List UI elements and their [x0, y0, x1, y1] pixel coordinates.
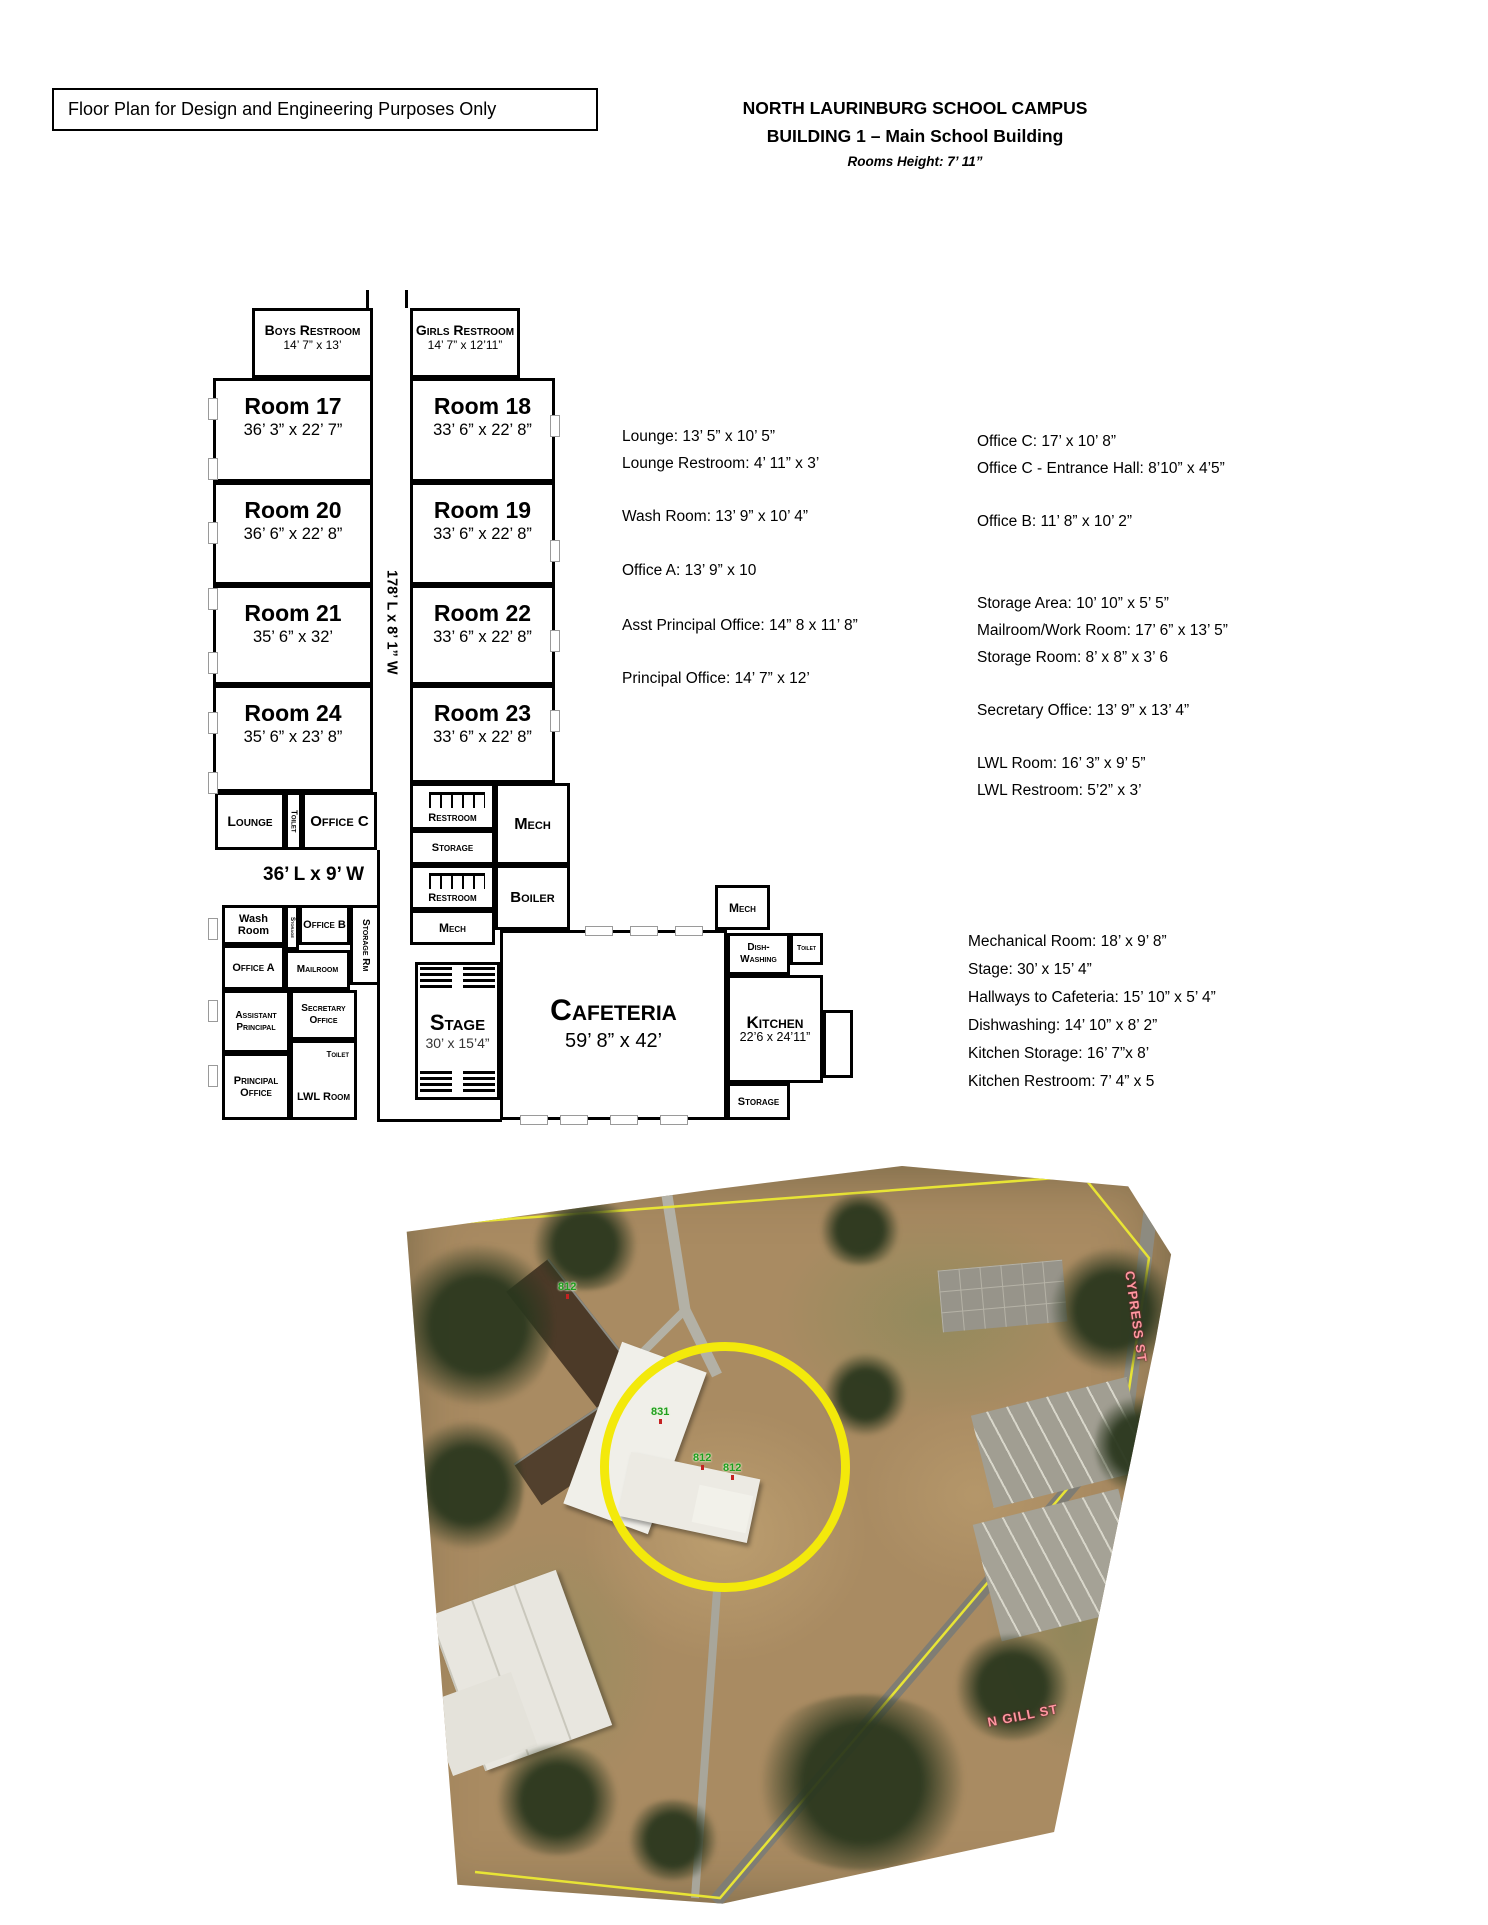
- note-line: Mechanical Room: 18’ x 9’ 8”: [968, 933, 1167, 951]
- window-mark: [550, 630, 560, 652]
- window-mark: [208, 652, 218, 674]
- room-lwl: Toilet LWL Room: [290, 1040, 357, 1120]
- room-label: Restroom: [428, 812, 476, 824]
- room-boys-restroom: Boys Restroom 14’ 7” x 13’: [252, 308, 373, 378]
- room-label: Boiler: [510, 890, 554, 905]
- room-label: Storage: [286, 917, 298, 938]
- note-line: Office C - Entrance Hall: 8’10” x 4’5”: [977, 460, 1225, 478]
- room-label: Office C: [310, 814, 368, 829]
- room-19: Room 19 33’ 6” x 22’ 8”: [410, 482, 555, 585]
- room-girls-restroom: Girls Restroom 14’ 7” x 12’11”: [410, 308, 520, 378]
- room-label: Room 23: [434, 700, 531, 726]
- note-line: Lounge Restroom: 4’ 11” x 3’: [622, 455, 819, 473]
- room-dims: 36’ 3” x 22’ 7”: [244, 419, 343, 441]
- room-dims: 33’ 6” x 22’ 8”: [433, 419, 532, 441]
- parcel-marker-label: 812: [558, 1281, 576, 1293]
- room-label: Room 24: [244, 700, 341, 726]
- document-page: Floor Plan for Design and Engineering Pu…: [0, 0, 1488, 1925]
- room-18: Room 18 33’ 6” x 22’ 8”: [410, 378, 555, 482]
- room-principal-office: Principal Office: [222, 1053, 290, 1120]
- tree-cluster: [745, 1695, 980, 1870]
- driveway-path: [640, 1310, 685, 1355]
- room-label: Storage Rm: [359, 919, 371, 971]
- note-line: LWL Room: 16’ 3” x 9’ 5”: [977, 755, 1146, 773]
- title-block: NORTH LAURINBURG SCHOOL CAMPUS BUILDING …: [690, 94, 1140, 174]
- window-mark: [560, 1115, 588, 1125]
- tree-cluster: [815, 1195, 905, 1265]
- window-mark: [550, 415, 560, 437]
- room-label: Room 19: [434, 497, 531, 523]
- room-dims: 59’ 8” x 42’: [565, 1027, 662, 1055]
- room-restroom-top: Restroom: [410, 783, 495, 830]
- room-office-a: Office A: [222, 945, 285, 990]
- room-mailroom: Mailroom: [285, 950, 350, 990]
- room-storage-mid: Storage: [410, 830, 495, 865]
- window-mark: [208, 522, 218, 544]
- room-toilet-label: Toilet: [326, 1049, 349, 1061]
- lounge-hallway: 36’ L x 9’ W: [263, 864, 364, 886]
- room-assistant-principal: Assistant Principal: [222, 990, 290, 1053]
- room-17: Room 17 36’ 3” x 22’ 7”: [213, 378, 373, 482]
- room-dims: 33’ 6” x 22’ 8”: [433, 726, 532, 748]
- room-label: Storage: [432, 842, 473, 854]
- room-24: Room 24 35’ 6” x 23’ 8”: [213, 685, 373, 792]
- window-mark: [520, 1115, 548, 1125]
- note-line: Storage Room: 8’ x 8” x 3’ 6: [977, 649, 1168, 667]
- window-mark: [610, 1115, 638, 1125]
- room-label: Boys Restroom: [265, 323, 361, 338]
- window-mark: [208, 398, 218, 420]
- campus-title: NORTH LAURINBURG SCHOOL CAMPUS: [690, 94, 1140, 122]
- note-line: Wash Room: 13’ 9” x 10’ 4”: [622, 508, 808, 526]
- room-label: Kitchen: [747, 1015, 804, 1030]
- room-label: Toilet: [288, 810, 300, 833]
- room-secretary-office: Secretary Office: [290, 990, 357, 1040]
- main-hallway-dims: 178’ L x 8’ 1” W: [384, 570, 400, 675]
- room-22: Room 22 33’ 6” x 22’ 8”: [410, 585, 555, 685]
- note-line: LWL Restroom: 5’2” x 3’: [977, 782, 1142, 800]
- note-line: Office A: 13’ 9” x 10: [622, 562, 756, 580]
- tree-cluster: [1050, 1245, 1175, 1375]
- room-label: Secretary Office: [293, 1003, 354, 1027]
- note-line: Dishwashing: 14’ 10” x 8’ 2”: [968, 1017, 1157, 1035]
- window-mark: [208, 1065, 218, 1087]
- tree-cluster: [525, 1200, 645, 1290]
- kitchen-bumpout: [823, 1010, 853, 1078]
- parcel-marker-label: 831: [651, 1406, 669, 1418]
- room-label: Storage: [738, 1096, 779, 1108]
- room-mech-main: Mech: [495, 783, 570, 865]
- room-dims: 14’ 7” x 13’: [283, 338, 341, 352]
- window-mark: [550, 710, 560, 732]
- room-dims: 35’ 6” x 32’: [253, 626, 333, 648]
- room-label: Room 20: [244, 497, 341, 523]
- room-boiler: Boiler: [495, 865, 570, 930]
- window-mark: [208, 1000, 218, 1022]
- room-stage: Stage 30’ x 15’4”: [415, 962, 500, 1100]
- room-office-c: Office C: [302, 792, 377, 850]
- room-21: Room 21 35’ 6” x 32’: [213, 585, 373, 685]
- room-dims: 35’ 6” x 23’ 8”: [244, 726, 343, 748]
- note-line: Principal Office: 14’ 7” x 12’: [622, 670, 810, 688]
- lounge-hallway-dims: 36’ L x 9’ W: [263, 864, 364, 885]
- parcel-marker-label: 812: [723, 1462, 741, 1474]
- stage-hatch-mark: [420, 967, 452, 991]
- main-hallway: 178’ L x 8’ 1” W: [373, 505, 410, 740]
- parcel-marker: 812: [693, 1452, 711, 1470]
- room-dims: 36’ 6” x 22’ 8”: [244, 523, 343, 545]
- window-mark: [208, 458, 218, 480]
- room-dims: 33’ 6” x 22’ 8”: [433, 523, 532, 545]
- room-kitchen-storage: Storage: [727, 1083, 790, 1120]
- room-restroom-bottom: Restroom: [410, 865, 495, 910]
- building-title: BUILDING 1 – Main School Building: [690, 122, 1140, 150]
- room-dims: 33’ 6” x 22’ 8”: [433, 626, 532, 648]
- room-label: Assistant Principal: [225, 1010, 287, 1034]
- note-line: Mailroom/Work Room: 17’ 6” x 13’ 5”: [977, 622, 1228, 640]
- note-line: Hallways to Cafeteria: 15’ 10” x 5’ 4”: [968, 989, 1216, 1007]
- note-line: Stage: 30’ x 15’ 4”: [968, 961, 1092, 979]
- room-lounge: Lounge: [215, 792, 285, 850]
- room-label: Lounge: [227, 814, 272, 829]
- note-line: Kitchen Storage: 16’ 7”x 8’: [968, 1045, 1149, 1063]
- restroom-fixture-marks: [429, 792, 485, 808]
- room-wash-room: Wash Room: [222, 905, 285, 945]
- room-label: Wash Room: [225, 913, 282, 937]
- room-label: Stage: [430, 1011, 485, 1035]
- note-line: Asst Principal Office: 14” 8 x 11’ 8”: [622, 617, 858, 635]
- parcel-marker-label: 812: [693, 1452, 711, 1464]
- parcel-marker-label: 812: [530, 1172, 548, 1184]
- room-dims: 22’6 x 24’11”: [740, 1030, 811, 1044]
- tree-cluster: [1095, 1390, 1185, 1500]
- note-line: Kitchen Restroom: 7’ 4” x 5: [968, 1073, 1154, 1091]
- note-line: Secretary Office: 13’ 9” x 13’ 4”: [977, 702, 1189, 720]
- parcel-marker: 812: [723, 1462, 741, 1480]
- wall-segment: [405, 290, 408, 308]
- room-mech-small: Mech: [410, 910, 495, 945]
- stage-hatch-mark: [420, 1071, 452, 1095]
- note-line: Lounge: 13’ 5” x 10’ 5”: [622, 428, 775, 446]
- note-line: Office C: 17’ x 10’ 8”: [977, 433, 1116, 451]
- room-kitchen-toilet: Toilet: [790, 933, 823, 965]
- wall-segment: [377, 850, 380, 1122]
- room-20: Room 20 36’ 6” x 22’ 8”: [213, 482, 373, 585]
- window-mark: [660, 1115, 688, 1125]
- tree-cluster: [490, 1745, 625, 1855]
- room-label: Office B: [303, 919, 346, 931]
- room-kitchen: Kitchen 22’6 x 24’11”: [727, 975, 823, 1083]
- note-line: Storage Area: 10’ 10” x 5’ 5”: [977, 595, 1169, 613]
- room-kitchen-mech: Mech: [715, 885, 770, 930]
- window-mark: [675, 926, 703, 936]
- room-label: Room 22: [434, 600, 531, 626]
- room-label: Toilet: [797, 943, 816, 955]
- room-label: Mailroom: [297, 964, 338, 976]
- window-mark: [630, 926, 658, 936]
- room-23: Room 23 33’ 6” x 22’ 8”: [410, 685, 555, 783]
- room-label: Office A: [232, 962, 274, 974]
- room-storage-small: Storage: [285, 905, 299, 950]
- room-label: Principal Office: [225, 1075, 287, 1099]
- room-dims: 14’ 7” x 12’11”: [428, 338, 503, 352]
- parcel-marker: 812: [530, 1172, 548, 1190]
- room-label: Mech: [439, 922, 466, 934]
- room-cafeteria: Cafeteria 59’ 8” x 42’: [500, 930, 727, 1120]
- aerial-photo: 812 812 831 812 812 CYPRESS ST N GILL ST: [395, 1160, 1175, 1915]
- room-label: Mech: [514, 817, 551, 832]
- rooms-height-note: Rooms Height: 7’ 11”: [690, 150, 1140, 174]
- room-label: Room 21: [244, 600, 341, 626]
- wall-segment: [366, 290, 369, 308]
- note-line: Office B: 11’ 8” x 10’ 2”: [977, 513, 1132, 531]
- stage-hatch-mark: [463, 1071, 495, 1095]
- tree-cluster: [413, 1410, 523, 1560]
- room-label: Dish- Washing: [737, 942, 781, 966]
- room-label: Room 17: [244, 393, 341, 419]
- window-mark: [208, 712, 218, 734]
- window-mark: [208, 588, 218, 610]
- room-storage-rm: Storage Rm: [350, 905, 380, 985]
- room-lounge-toilet: Toilet: [285, 792, 302, 850]
- room-dishwashing: Dish- Washing: [727, 933, 790, 975]
- room-office-b: Office B: [299, 905, 350, 945]
- window-mark: [550, 540, 560, 562]
- room-label: Room 18: [434, 393, 531, 419]
- room-label: Mech: [729, 902, 756, 914]
- room-label: Girls Restroom: [416, 323, 514, 338]
- window-mark: [208, 772, 218, 794]
- parcel-marker: 812: [558, 1281, 576, 1299]
- wall-segment: [377, 1119, 502, 1122]
- disclaimer-text: Floor Plan for Design and Engineering Pu…: [68, 99, 496, 120]
- tree-cluster: [623, 1800, 723, 1880]
- room-dims: 30’ x 15’4”: [425, 1035, 489, 1051]
- foundation-pad: [938, 1260, 1068, 1333]
- window-mark: [208, 918, 218, 940]
- room-label: Cafeteria: [550, 995, 677, 1027]
- disclaimer-box: Floor Plan for Design and Engineering Pu…: [52, 88, 598, 131]
- parcel-marker: 831: [651, 1406, 669, 1424]
- window-mark: [585, 926, 613, 936]
- stage-hatch-mark: [463, 967, 495, 991]
- room-label: LWL Room: [297, 1091, 350, 1103]
- restroom-fixture-marks: [429, 873, 485, 889]
- room-label: Restroom: [428, 892, 476, 904]
